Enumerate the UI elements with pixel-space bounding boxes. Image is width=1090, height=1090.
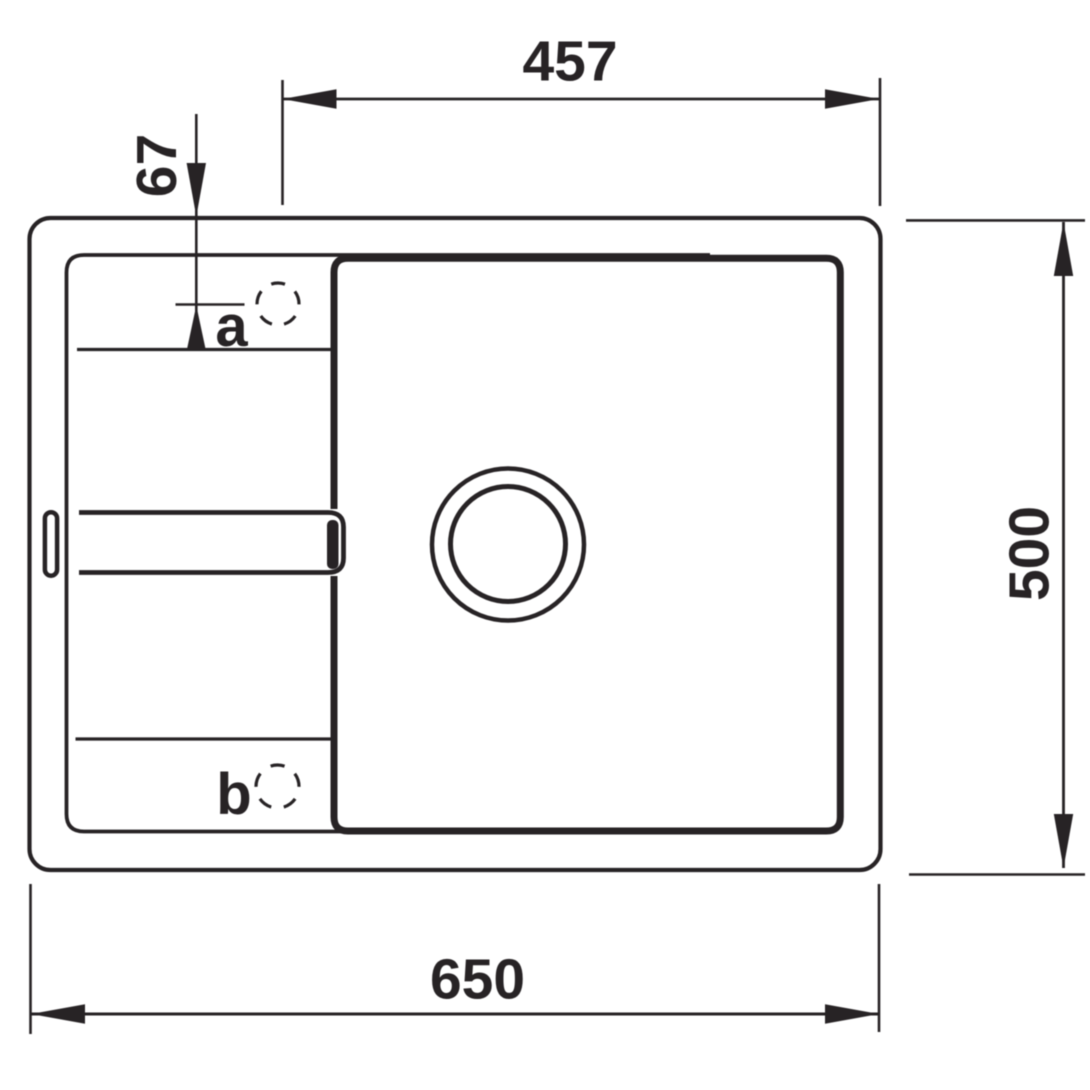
svg-text:a: a — [215, 294, 248, 359]
svg-text:67: 67 — [125, 134, 189, 197]
svg-text:b: b — [216, 762, 251, 827]
svg-text:500: 500 — [998, 506, 1062, 601]
svg-text:650: 650 — [430, 948, 525, 1012]
svg-text:457: 457 — [522, 30, 617, 94]
